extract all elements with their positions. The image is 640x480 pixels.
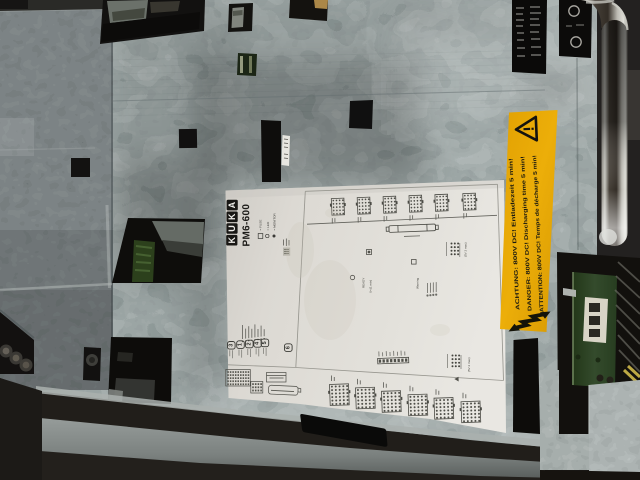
svg-text:3: 3 xyxy=(228,344,234,347)
svg-text:U: U xyxy=(227,225,237,232)
svg-text:6: 6 xyxy=(285,346,291,349)
svg-text:K: K xyxy=(227,213,237,220)
svg-text:(5V 2 max): (5V 2 max) xyxy=(467,357,471,372)
svg-text:5: 5 xyxy=(262,341,268,344)
svg-text:= LED: = LED xyxy=(266,221,270,230)
svg-text:READY: READY xyxy=(362,278,366,288)
svg-text:U<(1 min): U<(1 min) xyxy=(369,280,373,293)
svg-text:2: 2 xyxy=(246,343,252,346)
svg-text:K: K xyxy=(227,236,237,243)
svg-text:= FUSE: = FUSE xyxy=(259,220,263,231)
svg-text:PM6-600: PM6-600 xyxy=(241,204,252,247)
svg-text:Warning: Warning xyxy=(416,278,420,289)
svg-text:(5V 2 max): (5V 2 max) xyxy=(464,242,468,257)
svg-text:4: 4 xyxy=(255,342,261,345)
svg-text:1: 1 xyxy=(238,343,244,346)
svg-text:A: A xyxy=(227,201,237,208)
svg-text:= MONITOR: = MONITOR xyxy=(272,213,276,231)
